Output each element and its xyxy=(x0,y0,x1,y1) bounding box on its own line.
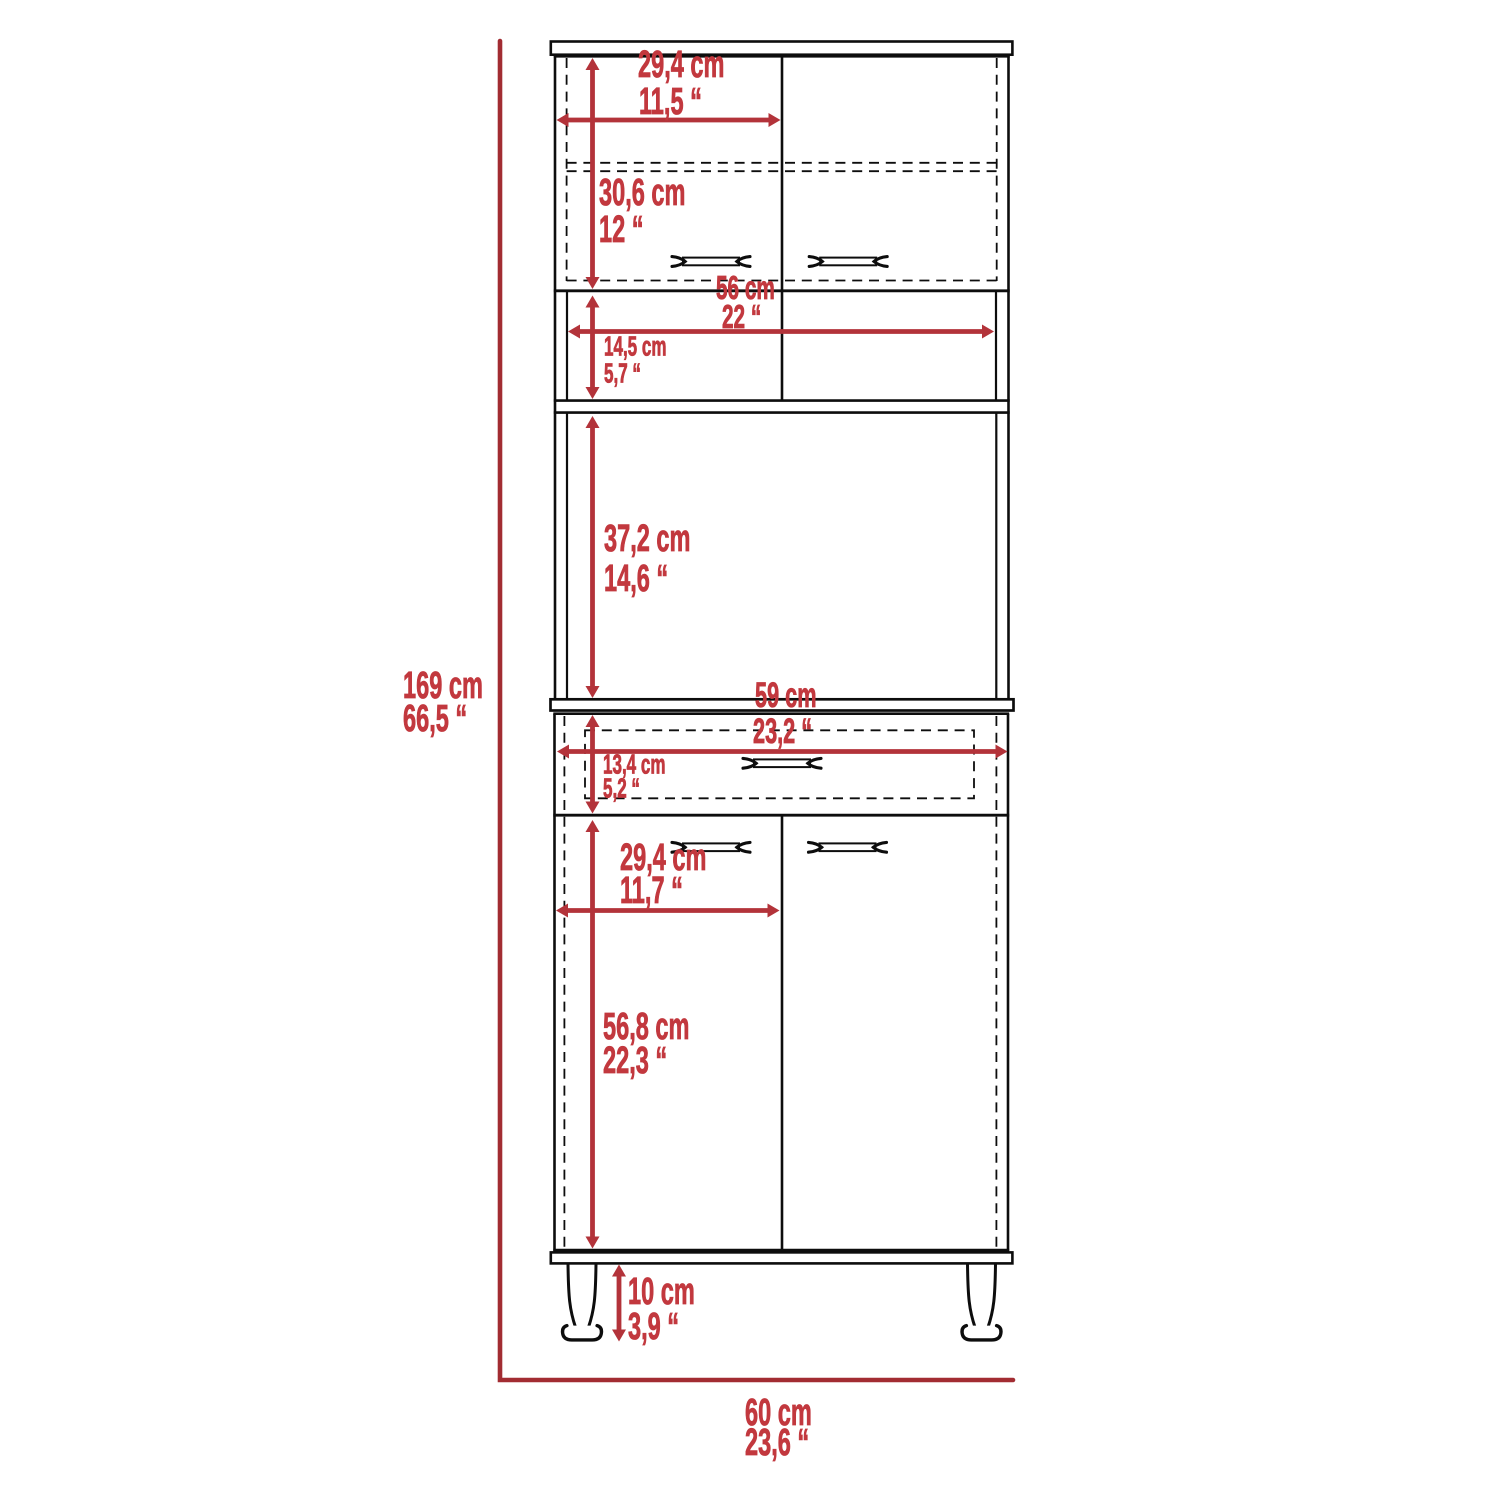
svg-text:5,2 “: 5,2 “ xyxy=(603,772,640,803)
svg-text:23,2 “: 23,2 “ xyxy=(753,713,812,751)
svg-text:37,2 cm: 37,2 cm xyxy=(604,516,690,559)
svg-text:14,6 “: 14,6 “ xyxy=(604,556,668,599)
svg-text:59 cm: 59 cm xyxy=(755,677,817,715)
svg-text:22 “: 22 “ xyxy=(722,298,761,335)
svg-text:5,7 “: 5,7 “ xyxy=(604,357,641,388)
svg-text:12 “: 12 “ xyxy=(599,207,644,250)
svg-text:23,6 “: 23,6 “ xyxy=(745,1420,809,1463)
svg-text:66,5 “: 66,5 “ xyxy=(403,696,467,739)
svg-text:11,5 “: 11,5 “ xyxy=(639,79,702,122)
svg-text:11,7 “: 11,7 “ xyxy=(620,868,683,911)
svg-text:3,9 “: 3,9 “ xyxy=(628,1304,679,1347)
svg-text:22,3 “: 22,3 “ xyxy=(603,1038,667,1081)
